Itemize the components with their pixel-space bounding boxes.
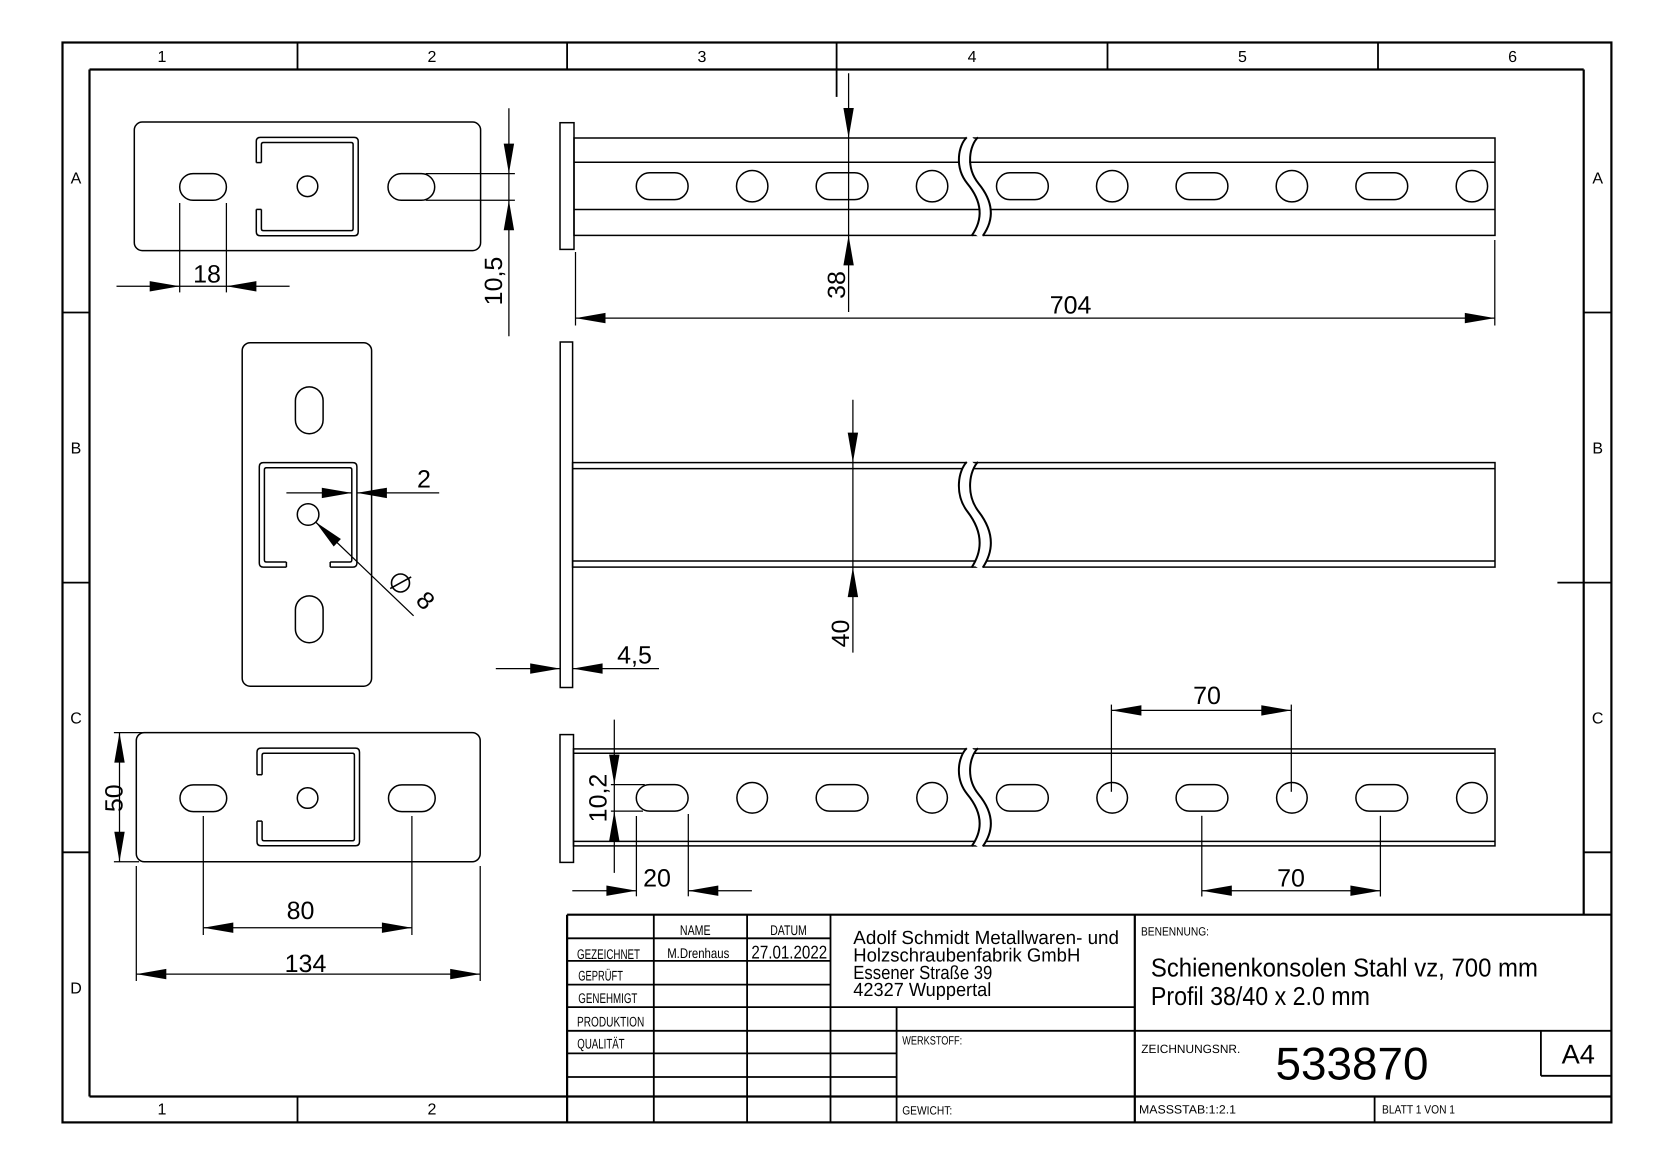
svg-text:B: B	[1592, 441, 1603, 458]
svg-text:MASSSTAB:1:2.1: MASSSTAB:1:2.1	[1139, 1102, 1236, 1116]
svg-text:2: 2	[427, 1102, 436, 1119]
svg-text:40: 40	[827, 620, 855, 648]
svg-text:D: D	[70, 980, 82, 997]
svg-text:PRODUKTION: PRODUKTION	[577, 1013, 644, 1029]
svg-text:NAME: NAME	[680, 922, 711, 938]
svg-text:A4: A4	[1562, 1039, 1595, 1069]
svg-text:134: 134	[285, 950, 327, 978]
svg-text:GEZEICHNET: GEZEICHNET	[577, 946, 640, 962]
svg-text:B: B	[71, 441, 82, 458]
svg-text:42327 Wuppertal: 42327 Wuppertal	[853, 980, 991, 1001]
svg-text:M.Drenhaus: M.Drenhaus	[667, 945, 729, 961]
svg-text:2: 2	[417, 466, 431, 494]
svg-text:20: 20	[643, 865, 671, 893]
svg-text:GEWICHT:: GEWICHT:	[902, 1103, 952, 1117]
svg-text:WERKSTOFF:: WERKSTOFF:	[902, 1033, 962, 1047]
svg-text:38: 38	[823, 271, 851, 299]
svg-text:70: 70	[1277, 865, 1305, 893]
svg-text:50: 50	[101, 784, 129, 812]
svg-text:Schienenkonsolen Stahl vz, 700: Schienenkonsolen Stahl vz, 700 mm	[1151, 952, 1538, 982]
svg-text:70: 70	[1193, 682, 1221, 710]
svg-text:6: 6	[1508, 49, 1517, 66]
svg-text:ZEICHNUNGSNR.: ZEICHNUNGSNR.	[1141, 1042, 1240, 1056]
svg-text:1: 1	[157, 1102, 166, 1119]
svg-text:GENEHMIGT: GENEHMIGT	[578, 990, 637, 1006]
svg-text:GEPRÜFT: GEPRÜFT	[578, 967, 623, 983]
svg-text:533870: 533870	[1276, 1038, 1429, 1090]
svg-text:C: C	[70, 710, 82, 727]
svg-text:10,2: 10,2	[585, 774, 613, 823]
svg-text:QUALITÄT: QUALITÄT	[577, 1036, 625, 1052]
svg-text:80: 80	[287, 897, 315, 925]
svg-text:10,5: 10,5	[480, 257, 508, 306]
svg-text:5: 5	[1238, 49, 1247, 66]
svg-text:3: 3	[698, 49, 707, 66]
svg-text:C: C	[1592, 710, 1604, 727]
svg-text:BLATT 1 VON 1: BLATT 1 VON 1	[1382, 1102, 1455, 1116]
svg-text:Profil 38/40 x 2.0 mm: Profil 38/40 x 2.0 mm	[1151, 981, 1370, 1011]
svg-text:27.01.2022: 27.01.2022	[751, 941, 827, 962]
svg-text:A: A	[1592, 171, 1603, 188]
svg-text:BENENNUNG:: BENENNUNG:	[1141, 925, 1209, 939]
svg-text:1: 1	[157, 49, 166, 66]
svg-text:DATUM: DATUM	[770, 922, 807, 938]
svg-text:18: 18	[193, 261, 221, 289]
svg-text:704: 704	[1050, 292, 1092, 320]
svg-text:4,5: 4,5	[617, 641, 652, 669]
svg-text:A: A	[71, 171, 82, 188]
svg-text:4: 4	[968, 49, 977, 66]
svg-text:2: 2	[427, 49, 436, 66]
